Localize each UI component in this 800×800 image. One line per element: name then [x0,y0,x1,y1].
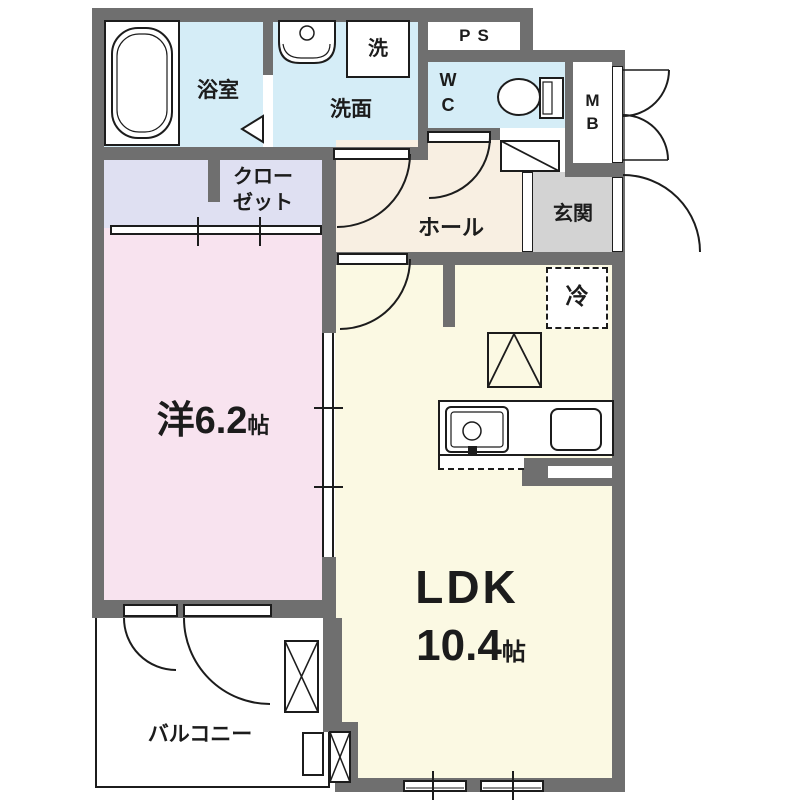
kitchen-pass-slot [548,466,612,478]
wall-bath-divider [263,18,273,75]
entrance-label: 玄関 [533,202,613,226]
wc-label-line2: C [442,95,455,115]
washroom-door-leaf [333,148,410,160]
balcony-door-left [123,604,178,617]
ldk-window-left [403,780,467,792]
kitchen-counter [438,400,614,456]
bathtub-box [104,20,180,146]
meter-box-label-line2: B [586,114,598,133]
ldk-door-leaf [337,253,408,265]
balcony-door-right [183,604,272,617]
wc-label-line1: W [440,70,457,90]
balcony-area [95,612,330,788]
wall-ps-bottom [428,50,625,62]
shoe-cabinet [500,140,560,172]
entrance-door-arc [623,175,700,252]
bath-door-jamb [263,75,273,140]
western-room-unit: 帖 [247,413,269,438]
wc-door-leaf [427,131,491,143]
meter-box-label-line1: M [585,91,599,110]
washroom-label: 洗面 [309,97,393,122]
wall-left [92,8,104,618]
entrance-step-bar [522,172,533,252]
entrance-door-jamb [612,177,623,252]
wc-label: W C [429,68,467,118]
bathroom-label: 浴室 [176,78,260,103]
ldk-window-right [480,780,544,792]
mb-door-lower-arc [623,115,668,160]
western-room-name: 洋6.2 [157,400,248,442]
floor-plan: 浴室 洗面 洗 PS W C M B 玄関 ホール クロー ゼット 洋6.2帖 … [0,0,800,800]
closet-label-line1: クロー [233,166,293,188]
pipe-space-label: PS [428,26,520,46]
wall-ldk-door-stub [443,265,455,327]
balcony-label: バルコニー [100,722,300,747]
wall-balcony-jog [323,722,358,732]
ldk-label: LDK [367,560,567,615]
meter-box-label: M B [573,89,612,135]
closet-label: クロー ゼット [201,164,325,216]
cupboard-box [487,332,542,388]
ldk-size-unit: 帖 [502,639,526,666]
closet-label-line2: ゼット [233,192,293,214]
counter-dash-strip [438,456,524,470]
room-sliding-door [322,333,334,557]
ldk-area [335,265,612,778]
ldk-size-value: 10.4 [416,621,502,670]
wall-balcony-ldk [323,618,342,722]
mb-door-upper-arc [623,70,669,116]
mb-door-jamb [612,66,623,163]
hall-label: ホール [386,215,516,241]
wall-balcony-low [348,732,358,778]
wall-wc-mb [565,52,573,163]
laundry-label: 洗 [346,37,410,61]
western-room-label: 洋6.2帖 [94,399,332,445]
ldk-size-label: 10.4帖 [351,620,591,673]
refrigerator-label: 冷 [546,283,608,311]
closet-sliding-door [110,225,322,235]
